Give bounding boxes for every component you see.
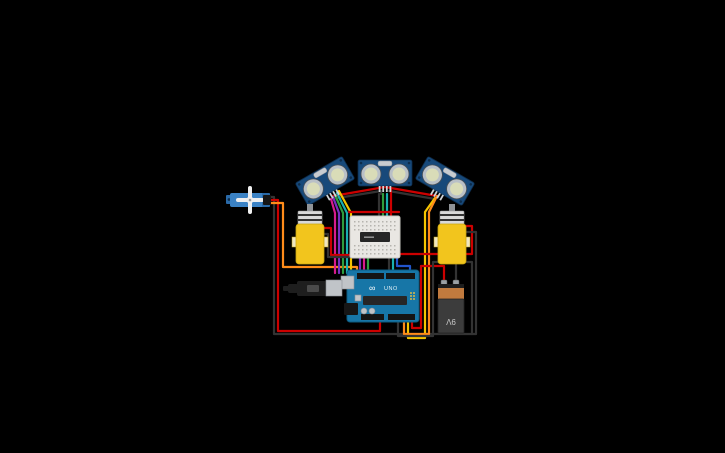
- ultrasonic-sensor-right[interactable]: [412, 156, 475, 211]
- digital-header-left[interactable]: [357, 273, 384, 279]
- circuit-canvas[interactable]: ∞ UNO 9V: [0, 0, 725, 453]
- battery-9v[interactable]: 9V: [438, 280, 464, 333]
- chip-marking: [364, 237, 374, 238]
- plug-label: [307, 285, 319, 292]
- analog-header[interactable]: [388, 314, 415, 320]
- power-header[interactable]: [361, 314, 384, 320]
- ultrasonic-sensor-left[interactable]: [295, 156, 358, 211]
- digital-header-right[interactable]: [386, 273, 415, 279]
- capacitor: [369, 308, 375, 314]
- mini-breadboard[interactable]: [350, 216, 400, 258]
- dc-motor-left[interactable]: [292, 204, 328, 264]
- micro-servo[interactable]: [226, 186, 271, 214]
- circuit-svg: ∞ UNO 9V: [0, 0, 725, 453]
- capacitor: [361, 308, 367, 314]
- plug-neck: [288, 284, 298, 293]
- wire-left-sig-yellow[interactable]: [339, 191, 351, 273]
- usb-port: [341, 276, 354, 289]
- power-jack: [344, 303, 358, 315]
- battery-label: 9V: [445, 317, 455, 326]
- arduino-uno[interactable]: ∞ UNO: [341, 270, 419, 322]
- reset-button[interactable]: [355, 295, 361, 301]
- servo-horn-icon: [236, 186, 264, 214]
- atmega-chip: [363, 296, 407, 305]
- arduino-model-label: UNO: [384, 286, 398, 292]
- dc-motor-right[interactable]: [434, 204, 470, 264]
- servo-connector: [263, 195, 271, 205]
- plug-metal: [326, 280, 342, 296]
- power-plug[interactable]: [283, 280, 342, 296]
- arduino-logo-icon: ∞: [369, 283, 375, 293]
